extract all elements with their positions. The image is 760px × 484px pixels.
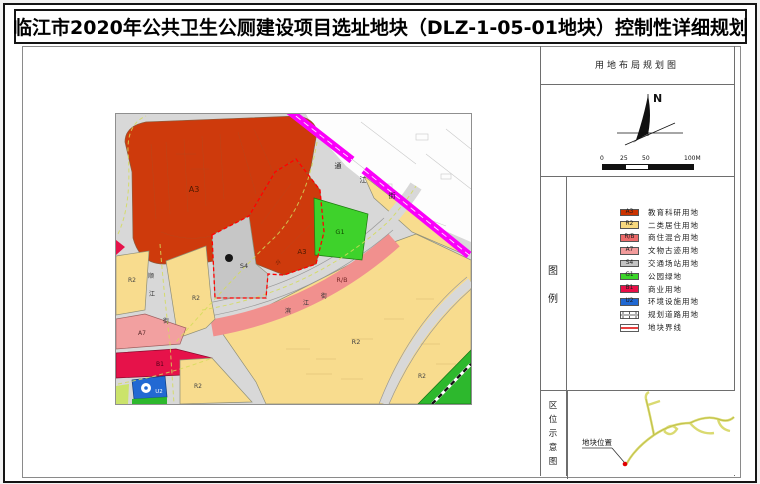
map-label: U2 xyxy=(155,389,163,395)
legend: A3教育科研用地R2二类居住用地R/B商住混合用地A7文物古迹用地S4交通场站用… xyxy=(620,206,699,334)
vertical-title-char: 位 xyxy=(549,413,558,425)
vertical-title-char: 意 xyxy=(549,441,558,453)
legend-label: 商住混合用地 xyxy=(648,232,699,243)
north-label: N xyxy=(653,92,662,105)
map-label: 顺 xyxy=(148,273,154,280)
legend-label: 教育科研用地 xyxy=(648,207,699,218)
map-label: G1 xyxy=(335,228,344,236)
legend-item: A7文物古迹用地 xyxy=(620,244,699,257)
legend-item: U2环境设施用地 xyxy=(620,296,699,309)
map-label: 江 xyxy=(149,291,155,298)
legend-code: A3 xyxy=(626,210,634,216)
scale-tick: 0 xyxy=(600,155,604,162)
legend-item: B1商业用地 xyxy=(620,283,699,296)
legend-code: A7 xyxy=(626,248,634,254)
legend-label: 地块界线 xyxy=(648,322,682,333)
legend-color-swatch: G1 xyxy=(620,273,639,281)
panel-header: 用地布局规划图 xyxy=(540,58,734,71)
legend-code: B1 xyxy=(626,286,634,292)
scale-tick: 25 xyxy=(620,155,628,162)
legend-label: 规划道路用地 xyxy=(648,309,699,320)
legend-item: R/B商住混合用地 xyxy=(620,232,699,245)
map-label: 街 xyxy=(163,317,169,325)
map-label: 江 xyxy=(360,176,367,184)
scale-seg xyxy=(603,165,625,169)
legend-item: 规划道路用地 xyxy=(620,308,699,321)
location-title-vertical: 区位示意图 xyxy=(540,390,566,476)
map-label: 街 xyxy=(321,292,327,300)
map-label: 小 xyxy=(275,259,280,266)
legend-item: S4交通场站用地 xyxy=(620,257,699,270)
legend-code: S4 xyxy=(626,261,633,267)
vertical-title-char: 例 xyxy=(548,290,558,305)
scale-tick: 100M xyxy=(684,155,701,162)
map-label: R2 xyxy=(194,383,202,390)
legend-color-swatch: B1 xyxy=(620,285,639,293)
map-label: R/B xyxy=(336,276,347,284)
legend-label: 交通场站用地 xyxy=(648,258,699,269)
road-symbol-swatch xyxy=(620,311,639,319)
toilet-site-dot xyxy=(225,254,233,262)
legend-color-swatch: A7 xyxy=(620,247,639,255)
plan-sheet: { "title": "临江市2020年公共卫生公厕建设项目选址地块（DLZ-1… xyxy=(0,0,760,484)
legend-code: U2 xyxy=(626,299,634,305)
boundary-symbol-swatch xyxy=(620,324,639,332)
legend-title-vertical: 图例 xyxy=(540,176,566,390)
panel-row-line-2 xyxy=(540,176,735,177)
vertical-title-char: 区 xyxy=(549,399,558,411)
landuse-map: A3A3G1S4R/BR2R2R2R2R2A7B1U2通江街顺江街滨江街小 xyxy=(115,113,472,405)
scale-seg xyxy=(625,165,649,169)
legend-label: 环境设施用地 xyxy=(648,296,699,307)
vertical-title-char: 图 xyxy=(549,455,558,467)
map-label: R2 xyxy=(352,338,361,346)
scale-bar: 02550100M xyxy=(600,155,700,173)
scale-seg xyxy=(649,165,693,169)
scale-tick: 50 xyxy=(642,155,650,162)
legend-item: A3教育科研用地 xyxy=(620,206,699,219)
legend-code: R/B xyxy=(625,235,635,241)
scale-bar-strip xyxy=(602,164,694,170)
plot-location-label: 地块位置 xyxy=(582,437,612,447)
legend-label: 公园绿地 xyxy=(648,271,682,282)
compass-cross-d xyxy=(625,123,675,145)
map-label: R2 xyxy=(418,373,426,380)
map-label: 街 xyxy=(389,191,396,200)
map-label: R2 xyxy=(128,277,136,284)
parcel-lightgreen-strip xyxy=(116,384,129,404)
legend-color-swatch: A3 xyxy=(620,209,639,217)
map-label: S4 xyxy=(240,262,248,270)
legend-code: G1 xyxy=(625,273,633,279)
panel-row-line-1 xyxy=(540,84,735,85)
legend-color-swatch: R/B xyxy=(620,234,639,242)
vertical-title-char: 图 xyxy=(548,262,558,277)
legend-label: 二类居住用地 xyxy=(648,220,699,231)
location-map: 地块位置 xyxy=(567,391,735,479)
legend-color-swatch: R2 xyxy=(620,221,639,229)
map-label: 江 xyxy=(303,300,309,307)
legend-label: 文物古迹用地 xyxy=(648,245,699,256)
legend-code: R2 xyxy=(626,222,634,228)
map-label: B1 xyxy=(156,361,164,368)
legend-label: 商业用地 xyxy=(648,284,682,295)
map-label: A7 xyxy=(138,330,146,337)
legend-item: 地块界线 xyxy=(620,321,699,334)
legend-item: R2二类居住用地 xyxy=(620,219,699,232)
map-label: A3 xyxy=(297,248,306,256)
legend-color-swatch: U2 xyxy=(620,298,639,306)
map-label: A3 xyxy=(189,185,200,194)
environment-facility-icon-core xyxy=(144,386,148,390)
vertical-title-char: 示 xyxy=(549,427,558,439)
map-label: 通 xyxy=(335,161,342,170)
map-label: 滨 xyxy=(285,307,291,315)
map-label: R2 xyxy=(192,295,200,302)
north-arrow: N xyxy=(595,88,705,158)
legend-item: G1公园绿地 xyxy=(620,270,699,283)
plot-location-dot xyxy=(623,462,628,467)
legend-color-swatch: S4 xyxy=(620,260,639,268)
plan-title: 临江市2020年公共卫生公厕建设项目选址地块（DLZ-1-05-01地块）控制性… xyxy=(14,9,747,44)
